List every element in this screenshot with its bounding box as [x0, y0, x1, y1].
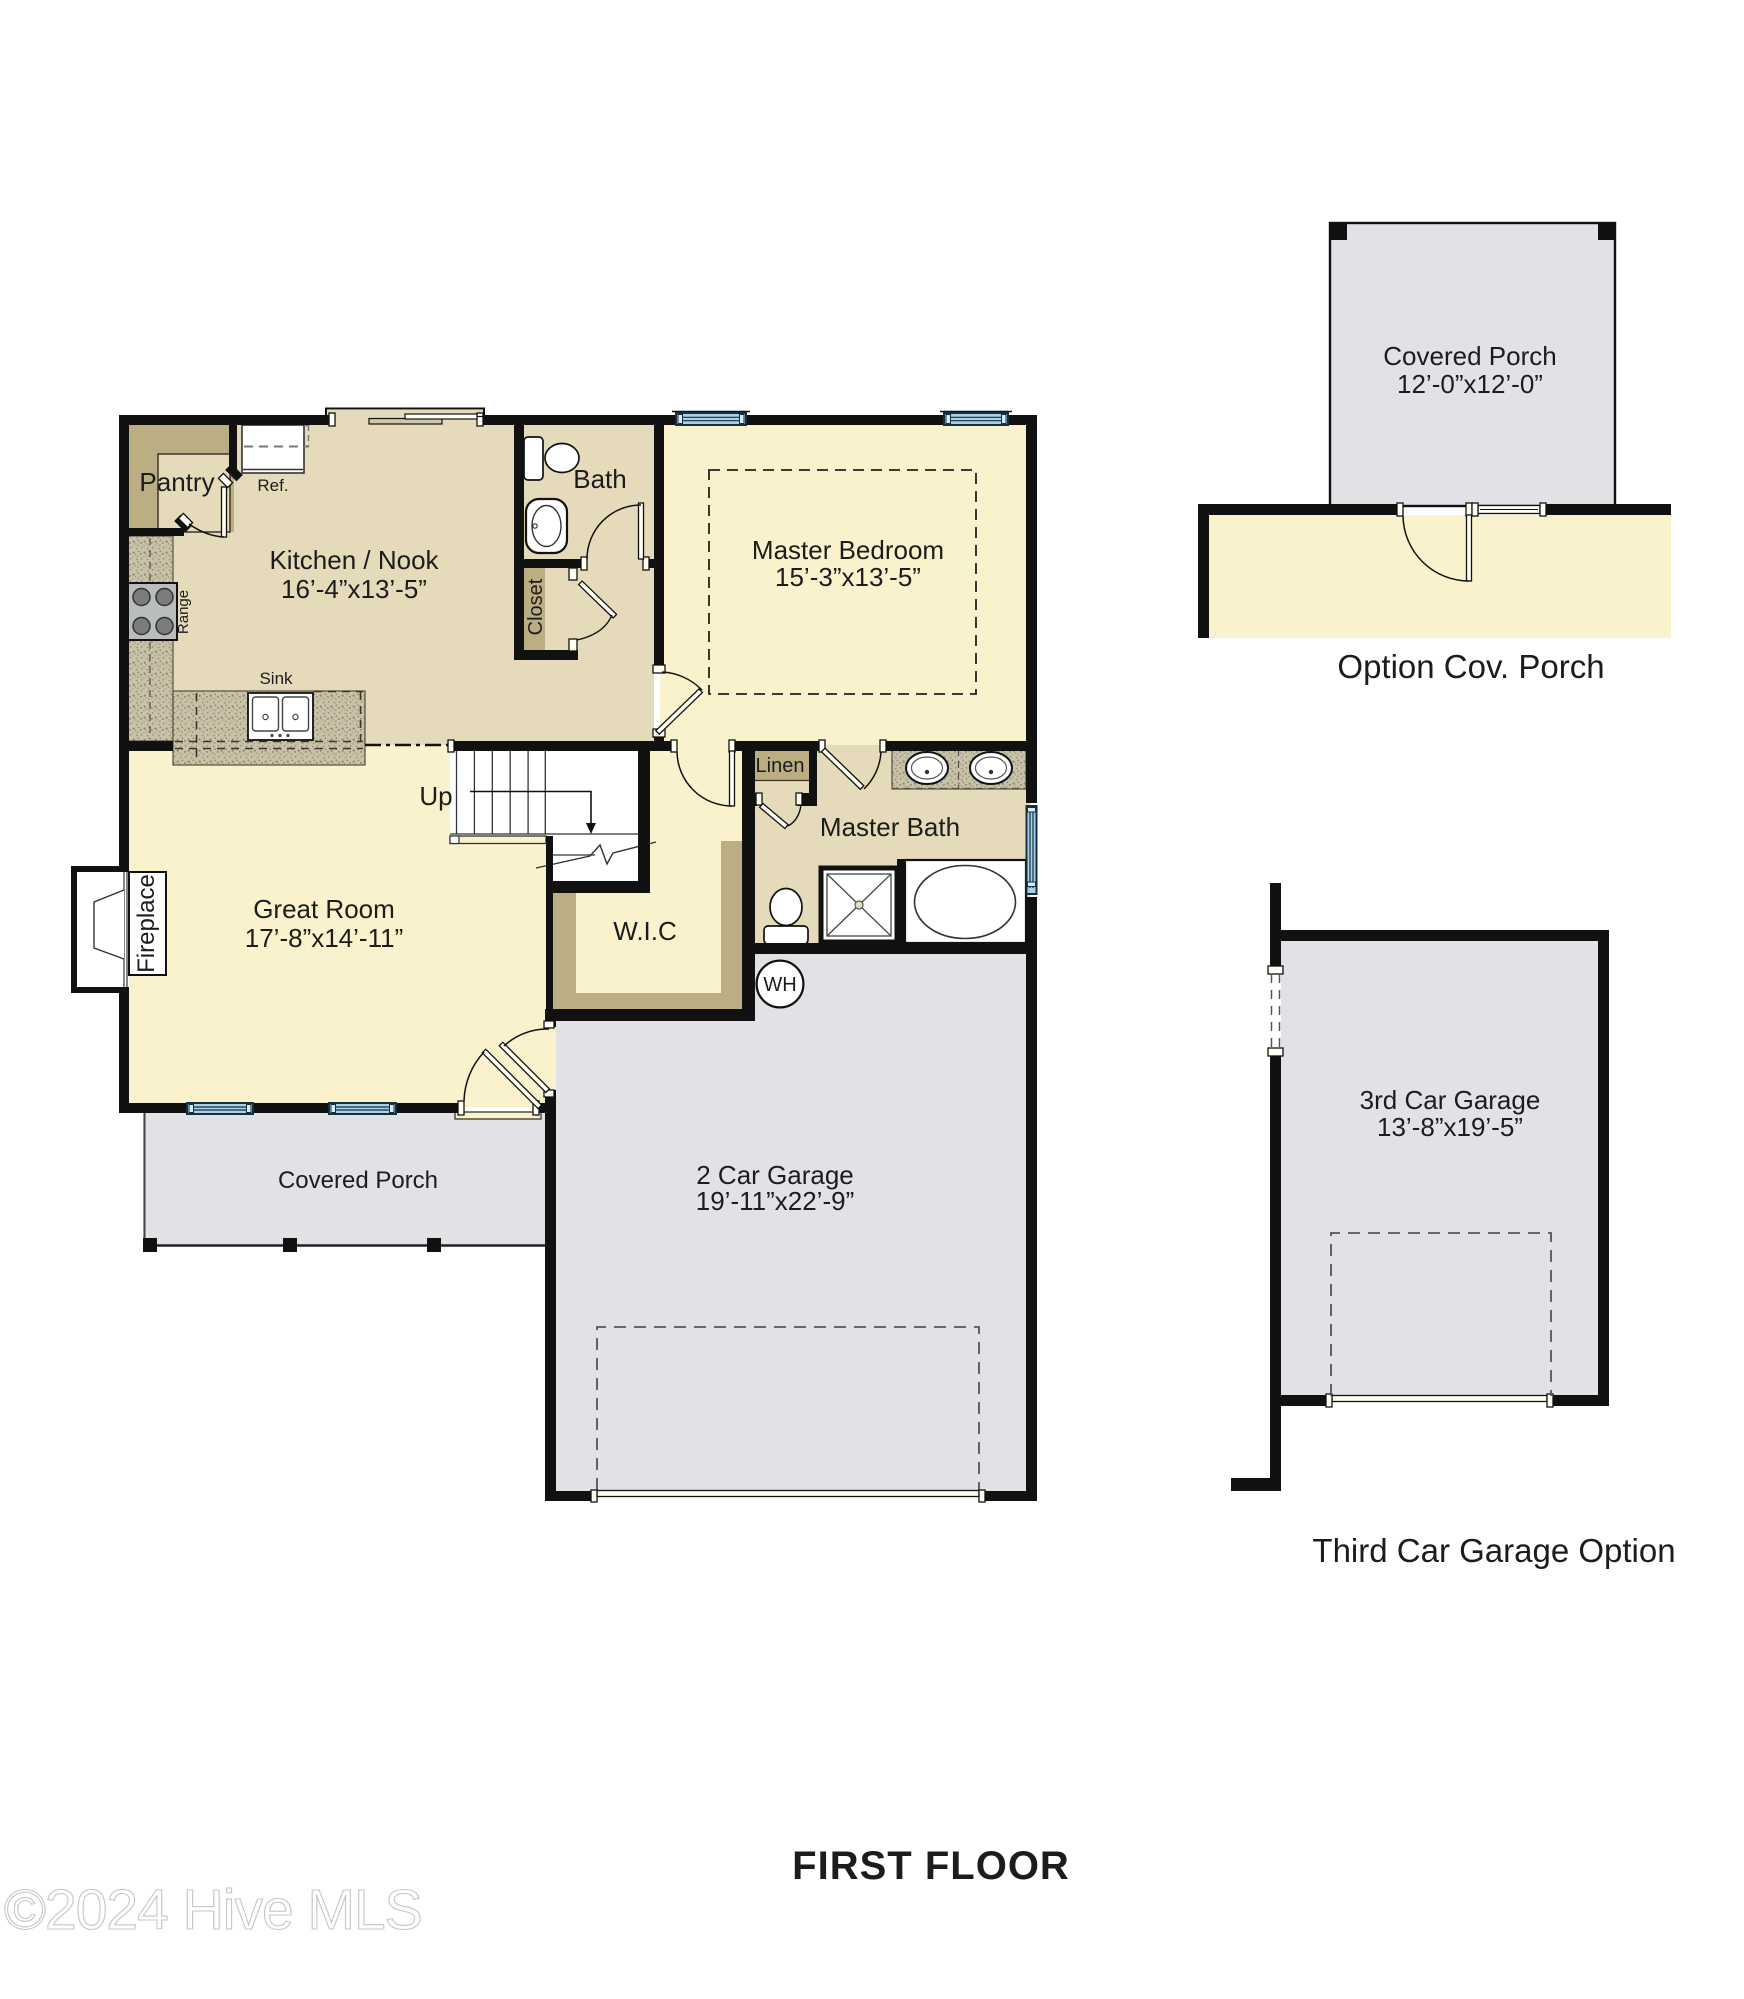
svg-text:FIRST FLOOR: FIRST FLOOR [792, 1844, 1070, 1888]
svg-text:12’-0”x12’-0”: 12’-0”x12’-0” [1397, 369, 1543, 399]
svg-text:Pantry: Pantry [139, 467, 214, 497]
svg-text:WH: WH [763, 974, 796, 996]
svg-text:Closet: Closet [525, 578, 547, 635]
svg-text:Bath: Bath [573, 464, 627, 494]
svg-text:19’-11”x22’-9”: 19’-11”x22’-9” [696, 1186, 854, 1216]
svg-text:Option Cov. Porch: Option Cov. Porch [1337, 648, 1604, 685]
svg-text:W.I.C: W.I.C [613, 916, 677, 946]
svg-text:Ref.: Ref. [257, 476, 288, 495]
svg-text:16’-4”x13’-5”: 16’-4”x13’-5” [281, 574, 427, 604]
svg-text:Up: Up [419, 781, 452, 811]
svg-text:Sink: Sink [259, 669, 293, 688]
svg-text:Linen: Linen [756, 755, 805, 777]
svg-text:17’-8”x14’-11”: 17’-8”x14’-11” [245, 923, 403, 953]
svg-text:Master Bath: Master Bath [820, 812, 960, 842]
svg-text:15’-3”x13’-5”: 15’-3”x13’-5” [775, 562, 921, 592]
svg-text:Covered Porch: Covered Porch [1383, 341, 1556, 371]
svg-text:Range: Range [175, 590, 192, 634]
svg-text:Fireplace: Fireplace [133, 874, 160, 973]
svg-text:Covered Porch: Covered Porch [278, 1167, 438, 1194]
svg-text:Great Room: Great Room [253, 894, 395, 924]
svg-text:Master Bedroom: Master Bedroom [752, 535, 944, 565]
svg-text:13’-8”x19’-5”: 13’-8”x19’-5” [1377, 1112, 1523, 1142]
svg-text:©2024 Hive MLS: ©2024 Hive MLS [4, 1878, 422, 1942]
svg-text:3rd Car Garage: 3rd Car Garage [1360, 1085, 1541, 1115]
svg-text:Kitchen / Nook: Kitchen / Nook [269, 545, 439, 575]
svg-text:Third Car Garage Option: Third Car Garage Option [1312, 1532, 1675, 1569]
